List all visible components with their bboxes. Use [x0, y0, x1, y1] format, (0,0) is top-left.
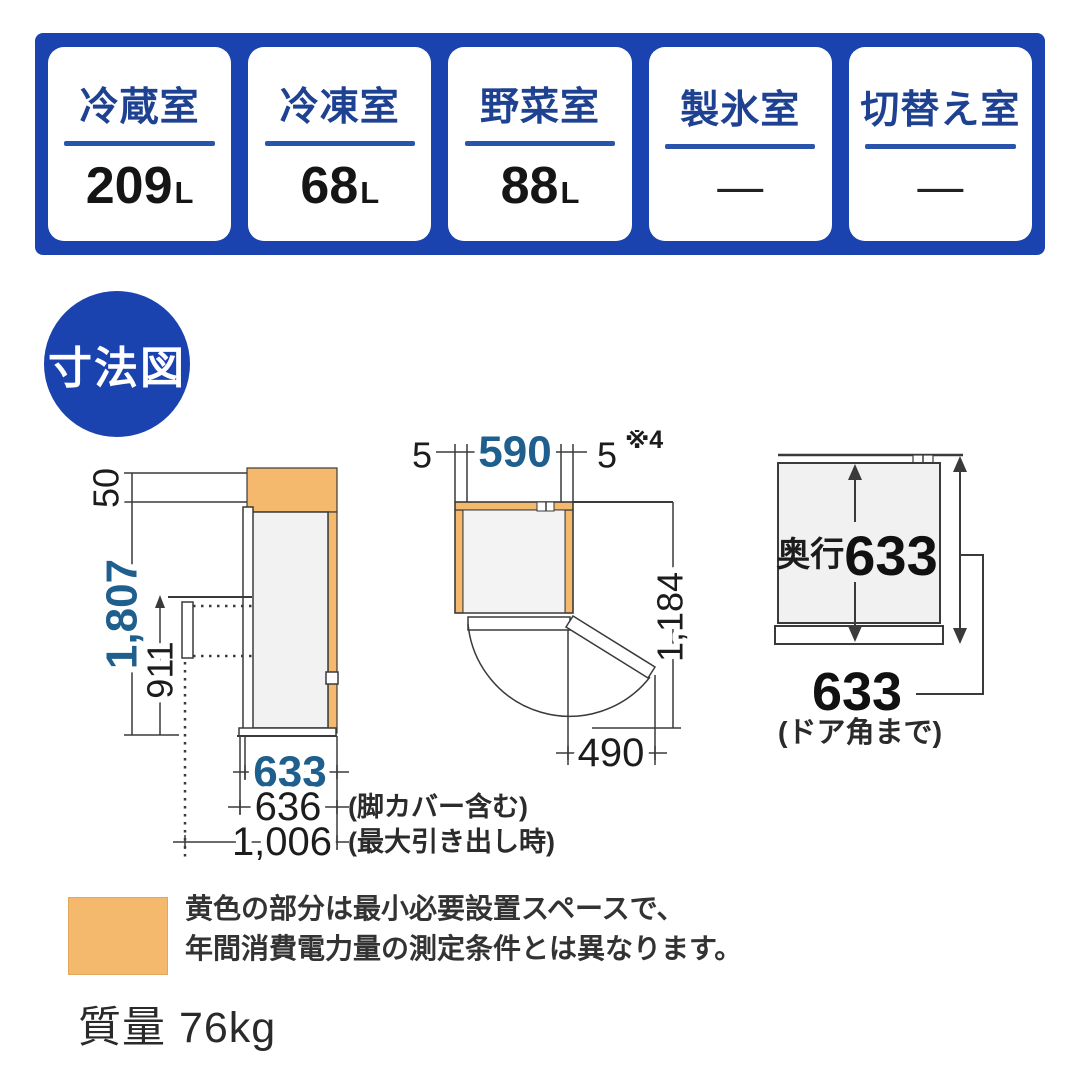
legend-line1: 黄色の部分は最小必要設置スペースで、 — [185, 889, 742, 929]
mass-label: 質量 — [78, 1004, 166, 1052]
capacity-number: 68 — [300, 157, 358, 215]
dimension-diagram: 50 1,807 911 633 636 (脚カバー含む) 1,006 (最大引… — [60, 430, 1050, 885]
badge-label: 寸法図 — [48, 332, 186, 396]
top-top-clearance-strip — [455, 502, 573, 510]
capacity-value: 68L — [300, 160, 379, 212]
dim-door-open-depth: 1,184 — [650, 572, 691, 662]
side-rear-notch — [326, 672, 338, 684]
top-left-clearance-strip — [455, 510, 463, 613]
capacity-unit: L — [175, 175, 194, 210]
side-drawer-front — [182, 602, 193, 658]
capacity-value: — — [917, 163, 963, 209]
capacity-card-freezer: 冷凍室 68L — [248, 47, 431, 241]
mass-spec: 質量 76kg — [78, 993, 276, 1055]
capacity-underline — [64, 141, 214, 146]
drawer-out-note: (最大引き出し時) — [348, 827, 555, 857]
capacity-label: 製氷室 — [680, 79, 800, 135]
dim-right-gap: 5 — [597, 435, 617, 476]
capacity-underline — [265, 141, 415, 146]
depth-value: 633 — [844, 524, 937, 587]
capacity-underline — [865, 144, 1015, 149]
capacity-value: 88L — [501, 160, 580, 212]
dimension-diagram-badge: 寸法図 — [44, 291, 190, 437]
dimension-svg: 50 1,807 911 633 636 (脚カバー含む) 1,006 (最大引… — [60, 430, 1050, 885]
dim-top-clearance: 50 — [86, 468, 127, 508]
mass-value: 76kg — [179, 1004, 276, 1052]
down-arrow-icon — [953, 628, 967, 644]
rear-view: 奥行633 633 (ドア角まで) — [775, 455, 983, 749]
top-door-closed — [468, 617, 570, 630]
dim-body-width: 590 — [478, 430, 551, 477]
capacity-underline — [665, 144, 815, 149]
dim-drawer-top-height: 911 — [140, 641, 181, 698]
side-rear-clearance-space — [328, 512, 337, 733]
top-right-clearance-strip — [565, 510, 573, 613]
capacity-banner: 冷蔵室 209L 冷凍室 68L 野菜室 88L 製氷室 — 切替え室 — — [35, 33, 1045, 255]
capacity-card-switchable: 切替え室 — — [849, 47, 1032, 241]
capacity-label: 野菜室 — [480, 76, 600, 132]
legend-text: 黄色の部分は最小必要設置スペースで、 年間消費電力量の測定条件とは異なります。 — [185, 889, 742, 969]
capacity-value: 209L — [86, 160, 194, 212]
capacity-number: 88 — [501, 157, 559, 215]
leg-cover-note: (脚カバー含む) — [348, 791, 528, 822]
legend-line2: 年間消費電力量の測定条件とは異なります。 — [185, 929, 742, 969]
dim-depth-drawer-out: 1,006 — [232, 820, 332, 864]
side-base — [239, 728, 336, 736]
capacity-value: — — [717, 163, 763, 209]
dim-left-gap: 5 — [412, 435, 432, 476]
capacity-unit: L — [360, 175, 379, 210]
capacity-card-vegetable: 野菜室 88L — [448, 47, 631, 241]
top-view: 5 590 5 ※4 1,184 490 — [412, 430, 691, 775]
capacity-card-fridge: 冷蔵室 209L — [48, 47, 231, 241]
up-arrow-icon — [953, 456, 967, 472]
capacity-card-icemaker: 製氷室 — — [649, 47, 832, 241]
legend-color-swatch — [68, 897, 168, 975]
footnote-ref: ※4 — [625, 430, 663, 454]
door-corner-note: (ドア角まで) — [778, 716, 942, 749]
top-fridge-body — [463, 510, 565, 613]
capacity-label: 切替え室 — [860, 79, 1020, 135]
side-fridge-door — [243, 507, 253, 729]
capacity-label: 冷凍室 — [280, 76, 400, 132]
side-top-clearance-space — [247, 468, 337, 512]
capacity-label: 冷蔵室 — [80, 76, 200, 132]
capacity-number: 209 — [86, 157, 173, 215]
depth-prefix: 奥行 — [776, 536, 844, 574]
top-door-open — [566, 616, 655, 678]
capacity-number: — — [917, 160, 963, 212]
dim-door-corner-depth: 633 — [812, 662, 902, 722]
capacity-unit: L — [560, 175, 579, 210]
top-door-swing-arc — [468, 624, 650, 716]
dim-door-width: 490 — [578, 731, 645, 775]
capacity-number: — — [717, 160, 763, 212]
up-arrow-icon — [155, 595, 165, 608]
capacity-underline — [465, 141, 615, 146]
side-door-handle-recess — [245, 658, 252, 667]
side-fridge-body — [252, 512, 328, 728]
